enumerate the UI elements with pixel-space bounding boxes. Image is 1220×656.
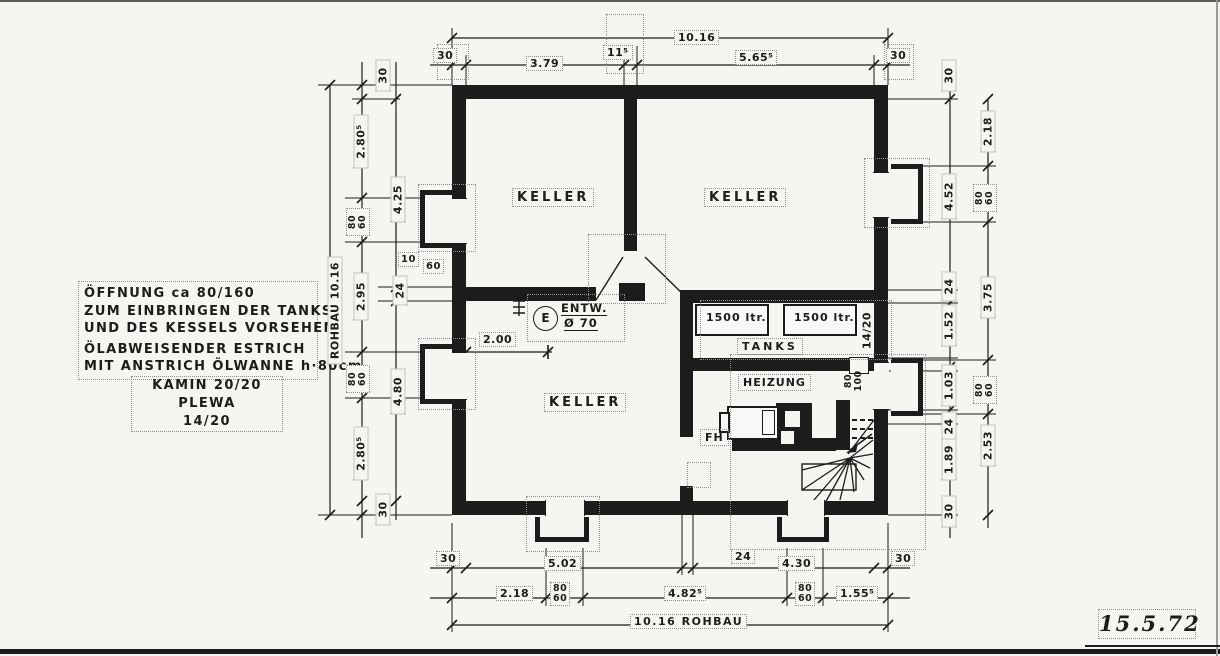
dim-left-a-0: 30	[376, 60, 391, 92]
dim-bottom-b-2: 4.82⁵	[664, 586, 706, 601]
room-label-tanks: TANKS	[737, 338, 803, 355]
note-line-1: ÖFFNUNG ca 80/160	[84, 285, 312, 303]
dim-top-total: 10.16	[674, 30, 719, 45]
wall-left	[452, 85, 466, 515]
wall-center-vertical	[624, 99, 637, 251]
room-label-keller-bottom-left: KELLER	[544, 393, 626, 412]
tank-left-label: 1500 ltr.	[702, 310, 771, 325]
dim-top-4: 30	[886, 48, 910, 63]
drain-label: ENTW.	[561, 301, 607, 316]
note-line-5: MIT ANSTRICH ÖLWANNE h·80cm	[84, 358, 312, 376]
dim-bottom-total: 10.16 ROHBAU	[630, 614, 747, 629]
dim-bottom-a-1: 5.02	[544, 556, 581, 571]
dim-right-a-2: 24	[942, 272, 957, 302]
dim-top-2: 11⁵	[603, 45, 633, 60]
label-fh: FH	[700, 429, 729, 446]
dim-right-a-7: 30	[942, 496, 957, 528]
title-block-line	[1085, 645, 1220, 647]
dim-right-a-3: 1.52	[942, 305, 957, 347]
dim-right-b-3: 80 60	[973, 376, 997, 404]
dim-right-a-5: 24	[942, 412, 957, 442]
annotation-box-top-ticks	[606, 14, 644, 74]
dim-bottom-b-1: 80 60	[550, 582, 570, 606]
dim-top-1: 3.79	[526, 56, 563, 71]
dim-right-a-1: 4.52	[942, 174, 957, 220]
dim-right-b-0: 2.18	[981, 111, 996, 153]
kamin-note-line-2: 14/20	[132, 413, 282, 431]
kamin-note-line-1: KAMIN 20/20 PLEWA	[132, 377, 282, 413]
note-line-4: ÖLABWEISENDER ESTRICH	[84, 341, 312, 359]
dim-keller-width: 2.00	[479, 332, 516, 347]
kamin-note: KAMIN 20/20 PLEWA 14/20	[131, 376, 283, 432]
wall-top	[452, 85, 888, 99]
dim-left-a-6: 30	[376, 494, 391, 526]
drain-symbol-circle: E	[533, 306, 558, 331]
frame-bottom-bar	[0, 649, 1220, 654]
frame-top-line	[0, 0, 1220, 2]
dim-bottom-a-3: 4.30	[778, 556, 815, 571]
dim-left-a-2: 80 60	[346, 208, 370, 236]
dim-right-b-4: 2.53	[981, 425, 996, 467]
annotation-box-window-left-top	[418, 184, 476, 252]
room-label-keller-top-right: KELLER	[704, 188, 786, 207]
dim-left-total: ROHBAU 10.16	[328, 257, 343, 365]
dim-bottom-b-4: 1.55⁵	[836, 586, 878, 601]
dim-left-b-0: 4.25	[391, 177, 406, 223]
flue-opening-size: 80 100	[843, 367, 865, 395]
dim-bottom-b-0: 2.18	[496, 586, 533, 601]
wall-tanks-left	[680, 290, 693, 437]
dim-left-a-1: 2.80⁵	[354, 115, 369, 169]
dim-right-b-2: 3.75	[981, 277, 996, 319]
dim-left-a-3: 2.95	[354, 273, 369, 321]
dim-right-a-6: 1.89	[942, 439, 957, 481]
note-line-3: UND DES KESSELS VORSEHEN	[84, 320, 312, 338]
dim-bottom-b-3: 80 60	[795, 582, 815, 606]
dim-wall-detail-0: 10	[398, 252, 419, 267]
dim-left-a-5: 2.80⁵	[354, 427, 369, 481]
drain-diameter: Ø 70	[564, 316, 598, 331]
dim-wall-detail-1: 60	[423, 259, 444, 274]
notes-block: ÖFFNUNG ca 80/160 ZUM EINBRINGEN DER TAN…	[78, 281, 318, 380]
floor-plan-sheet: ÖFFNUNG ca 80/160 ZUM EINBRINGEN DER TAN…	[0, 0, 1220, 656]
dim-left-b-2: 4.80	[391, 369, 406, 415]
dim-bottom-a-2: 24	[731, 549, 755, 564]
dim-bottom-a-4: 30	[891, 551, 915, 566]
dim-top-0: 30	[433, 48, 457, 63]
tank-right-label: 1500 ltr.	[790, 310, 859, 325]
flue-label: 14/20	[861, 306, 874, 356]
frame-right-line	[1216, 0, 1218, 656]
annotation-box-window-bottom-left	[526, 496, 600, 552]
room-label-keller-top-left: KELLER	[512, 188, 594, 207]
dim-left-a-4: 80 60	[346, 365, 370, 393]
drawing-date: 15.5.72	[1098, 609, 1196, 639]
dim-right-b-1: 80 60	[973, 184, 997, 212]
annotation-box-window-left-bottom	[418, 338, 476, 410]
room-label-heizung: HEIZUNG	[738, 374, 811, 391]
dim-left-b-1: 24	[393, 276, 408, 306]
note-line-2: ZUM EINBRINGEN DER TANKS	[84, 303, 312, 321]
dim-top-3: 5.65⁵	[735, 50, 777, 65]
wall-stub-bottom	[680, 486, 693, 502]
dim-right-a-0: 30	[942, 60, 957, 92]
dim-right-a-4: 1.03	[942, 365, 957, 407]
annotation-box-window-right-top	[864, 158, 930, 228]
pump-sump	[687, 462, 711, 488]
dim-bottom-a-0: 30	[436, 551, 460, 566]
